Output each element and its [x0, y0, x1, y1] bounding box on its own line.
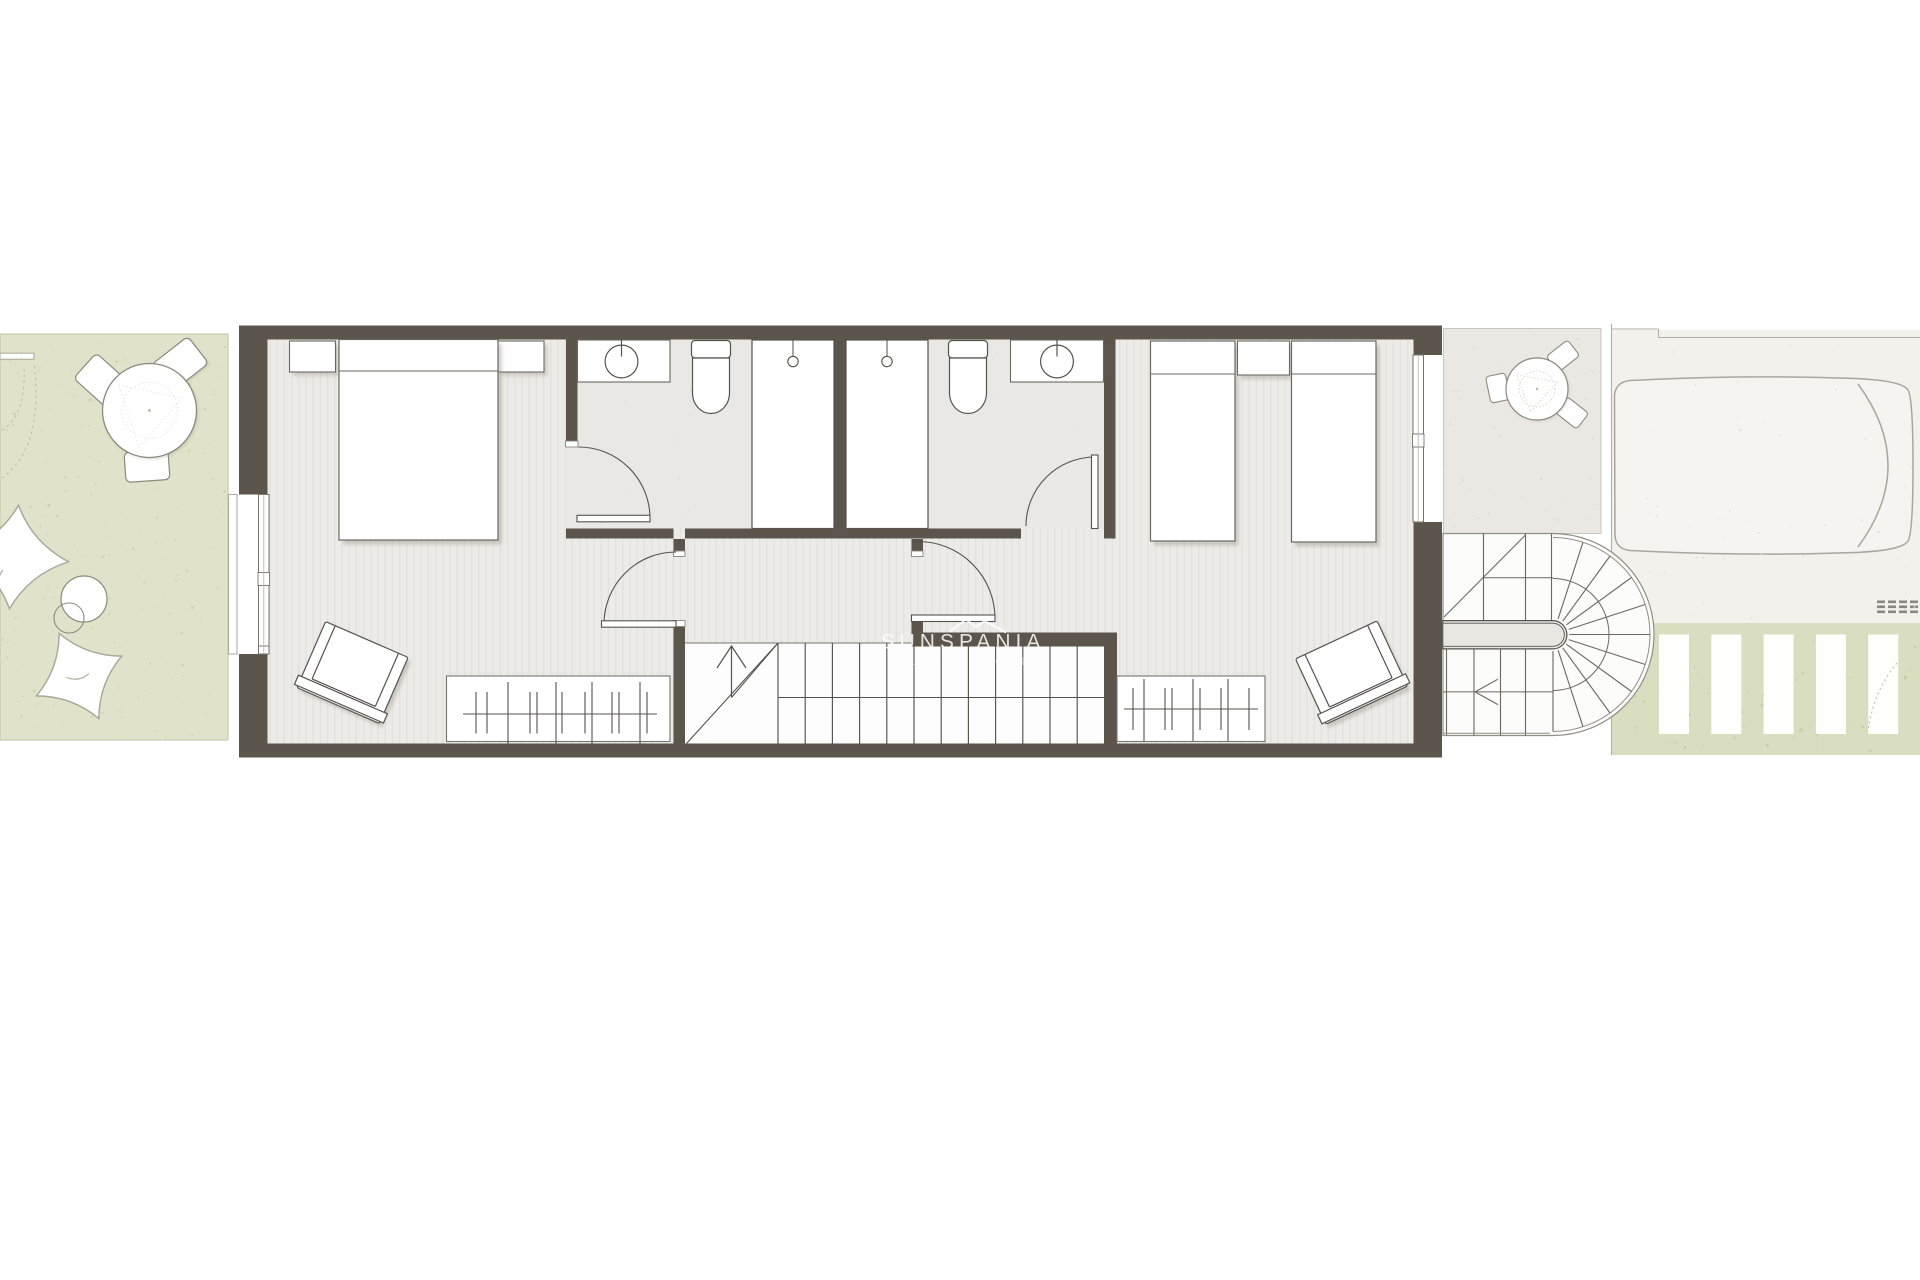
svg-text:REAL ESTATE AGENCY: REAL ESTATE AGENCY [879, 656, 1047, 668]
svg-text:SUNSPANIA: SUNSPANIA [881, 631, 1046, 654]
